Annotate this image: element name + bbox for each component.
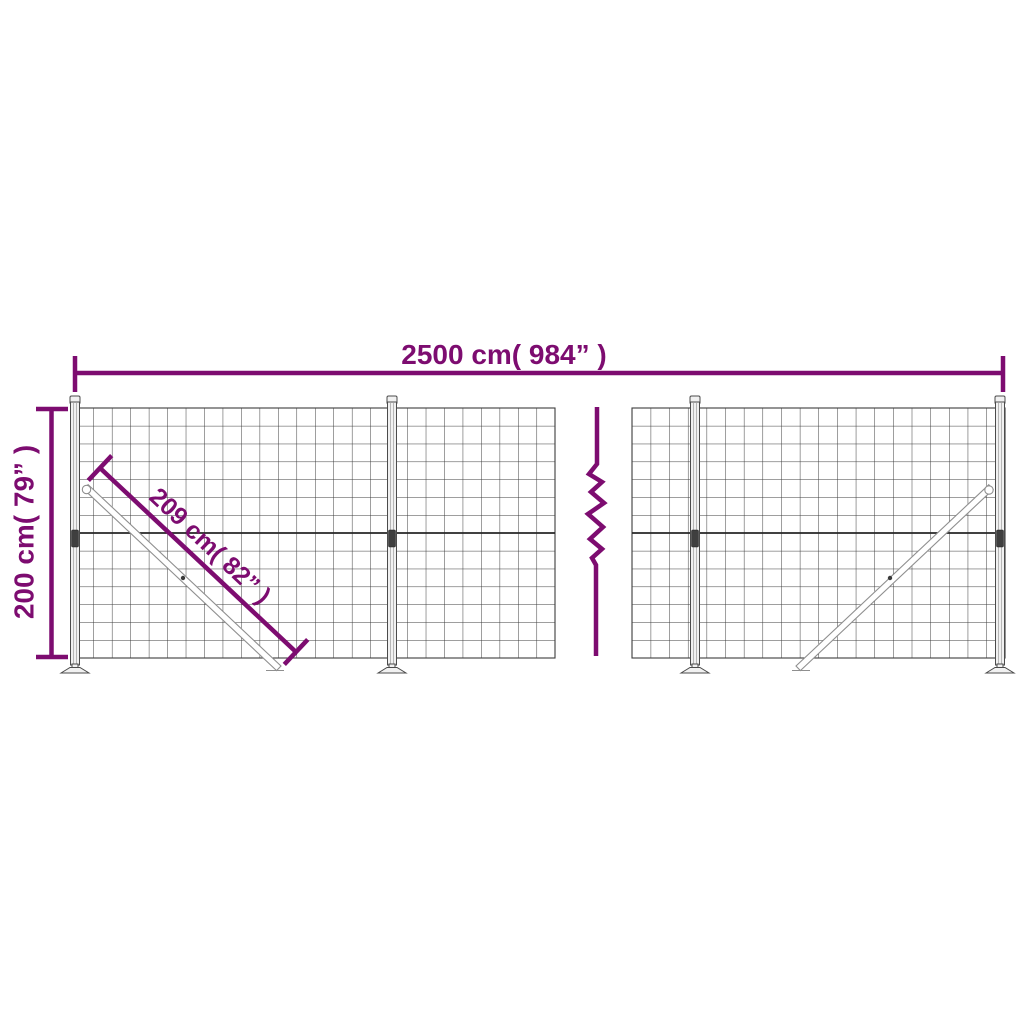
brace-anchor-ring [82,485,90,493]
product-dimension-diagram: 2500 cm( 984” ) 200 cm( 79” ) [0,0,1024,1024]
brace-anchor-ring [985,486,993,494]
height-dimension: 200 cm( 79” ) [9,409,69,657]
post-base-plate [986,668,1014,674]
break-symbol [588,407,604,656]
fence-diagram-canvas: 2500 cm( 984” ) 200 cm( 79” ) [0,0,1024,1024]
brace-bolt [181,576,185,580]
post-clamp [997,530,1004,547]
fence-right-section [632,396,1014,673]
post-base-plate [681,668,709,674]
post-clamp [389,530,396,547]
break-zigzag [588,407,604,656]
post-clamp [692,530,699,547]
width-dimension: 2500 cm( 984” ) [75,339,1003,392]
post-base-plate [61,668,89,674]
height-dimension-label: 200 cm( 79” ) [9,445,40,619]
width-dimension-label: 2500 cm( 984” ) [401,339,606,370]
post-base-plate [378,668,406,674]
fence-left-section [61,396,555,673]
brace-bolt [888,576,892,580]
post-clamp [72,530,79,547]
